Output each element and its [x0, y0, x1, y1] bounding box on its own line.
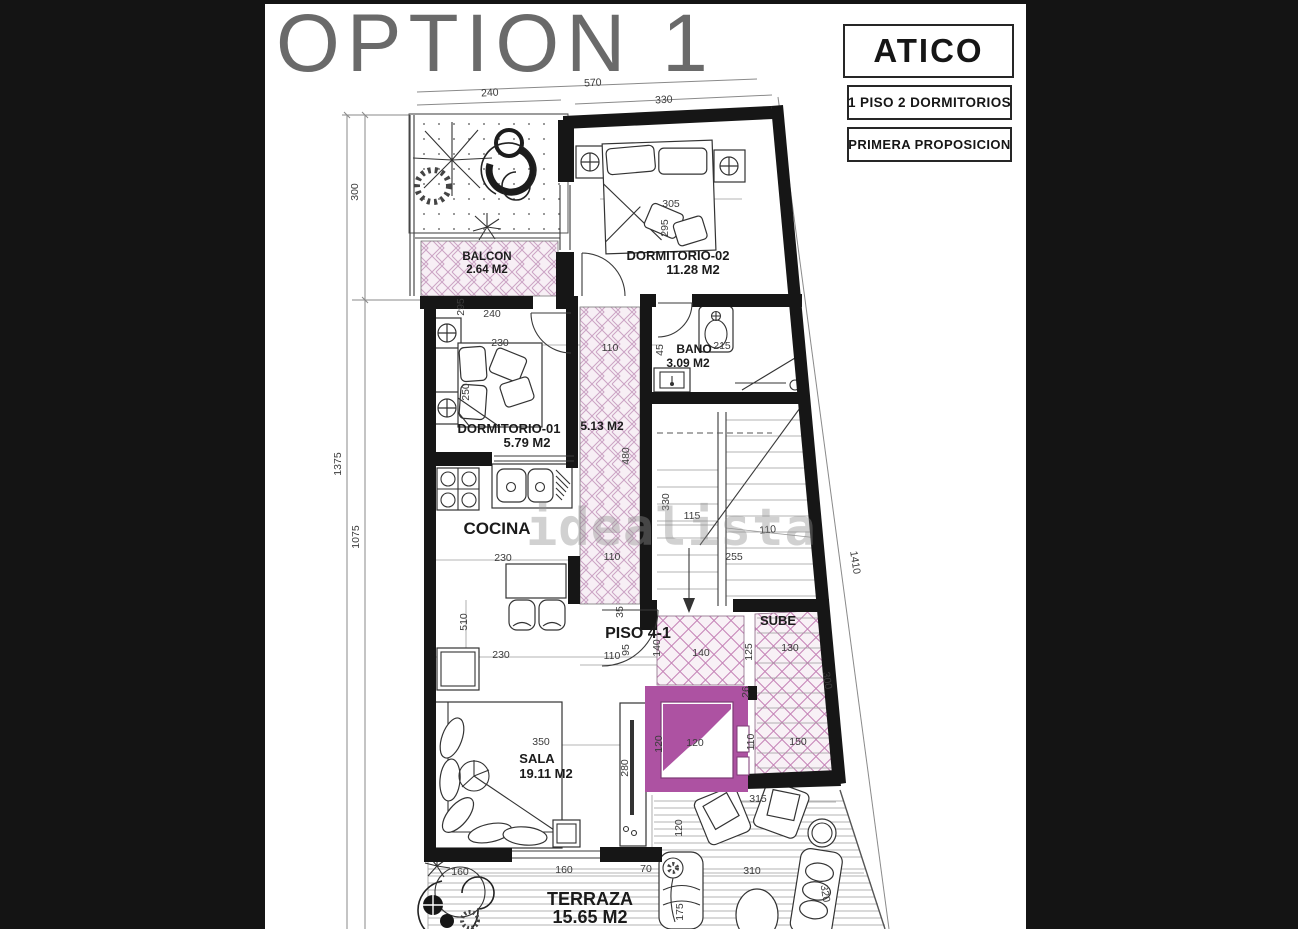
dimension-label: 295	[659, 219, 671, 237]
dimension-label: 130	[781, 642, 799, 654]
room-label: BALCON	[462, 251, 511, 263]
dimension-label: 240	[481, 87, 499, 100]
dimension-label: 480	[620, 447, 632, 465]
dimension-label: 140	[692, 647, 710, 659]
dimension-label: 120	[653, 735, 665, 753]
room-label: TERRAZA	[547, 889, 633, 909]
cocina-fixtures	[437, 464, 572, 630]
dimension-label: 1375	[332, 452, 344, 476]
dimension-label: 510	[458, 613, 470, 631]
dimension-label: 115	[684, 510, 701, 522]
dimension-label: 70	[640, 863, 652, 875]
dimension-label: 110	[745, 733, 757, 750]
dimension-label: 110	[602, 342, 619, 354]
screenshot-stage: OPTION 1 ATICO 1 PISO 2 DORMITORIOS PRIM…	[0, 0, 1298, 929]
dimension-label: 110	[604, 551, 621, 563]
dimension-label: 160	[555, 864, 573, 876]
room-label: SALA	[519, 751, 555, 766]
dimension-label: 215	[713, 340, 731, 352]
room-label: 19.11 M2	[519, 766, 573, 781]
dimension-label: 330	[655, 94, 673, 107]
dimension-label: 35	[614, 606, 626, 618]
dimension-label: 120	[686, 737, 704, 749]
dimension-label: 110	[759, 523, 777, 536]
main-staircase	[657, 408, 825, 613]
room-label: 5.13 M2	[580, 419, 624, 433]
dimension-label: 95	[620, 644, 632, 656]
room-label: DORMITORIO-01	[457, 421, 560, 436]
dimension-label: 160	[451, 866, 469, 878]
dimension-label: 1410	[847, 550, 863, 575]
dimension-label: 315	[749, 793, 767, 805]
room-label: 2.64 M2	[466, 264, 508, 276]
dimension-label: 26	[740, 686, 752, 698]
dimension-label: 350	[532, 736, 550, 748]
dimension-label: 280	[619, 759, 631, 777]
dimension-label: 230	[492, 649, 510, 661]
dimension-label: 140	[651, 639, 663, 657]
room-label: 15.65 M2	[552, 907, 627, 927]
room-label: 5.79 M2	[504, 435, 551, 450]
dimension-label: 120	[673, 819, 685, 837]
dimension-label: 295	[455, 298, 467, 316]
dimension-label: 330	[660, 493, 672, 511]
room-label: COCINA	[463, 519, 530, 538]
dimension-label: 250	[460, 383, 472, 401]
room-label: 3.09 M2	[666, 356, 710, 370]
sala-furniture	[432, 648, 646, 848]
dimension-label: 310	[743, 865, 761, 877]
room-label: SUBE	[760, 613, 796, 628]
floor-plan: BALCON2.64 M2DORMITORIO-0211.28 M2DORMIT…	[0, 0, 1298, 929]
dimension-label: 240	[483, 308, 501, 320]
dimension-label: 570	[584, 77, 602, 90]
dimension-label: 230	[494, 552, 512, 564]
dimension-label: 300	[349, 183, 361, 201]
dorm1-furniture	[433, 318, 542, 427]
dimension-label: 305	[662, 198, 680, 210]
dimension-label: 150	[789, 736, 807, 748]
dimension-label: 175	[674, 903, 686, 921]
dimension-label: 1075	[350, 525, 362, 549]
dimension-label: 45	[654, 344, 666, 356]
room-label: 11.28 M2	[666, 262, 720, 277]
dimension-label: 230	[491, 337, 509, 349]
roof-garden	[409, 114, 568, 240]
dimension-label: 255	[725, 551, 743, 563]
dimension-label: 125	[743, 643, 755, 661]
room-label: BANO	[676, 342, 711, 356]
room-label: DORMITORIO-02	[626, 248, 729, 263]
dimension-label: 110	[604, 650, 621, 662]
